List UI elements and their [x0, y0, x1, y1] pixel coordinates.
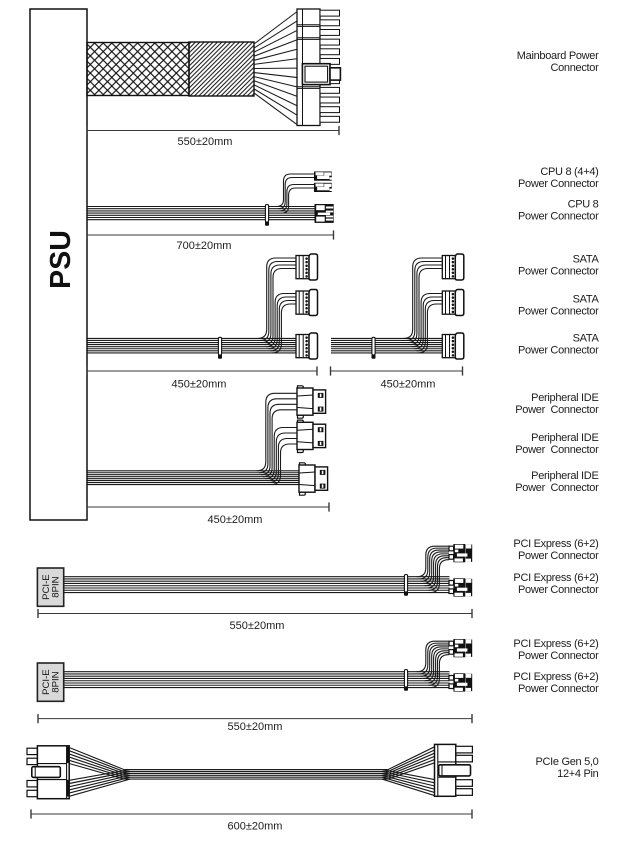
- svg-text:550±20mm: 550±20mm: [228, 721, 283, 733]
- svg-text:700±20mm: 700±20mm: [177, 240, 232, 252]
- svg-text:PCI Express (6+2)Power Connect: PCI Express (6+2)Power Connector: [513, 671, 599, 695]
- svg-text:550±20mm: 550±20mm: [230, 620, 285, 632]
- svg-text:PCI-E8PIN: PCI-E8PIN: [41, 574, 61, 600]
- svg-text:PCI-E8PIN: PCI-E8PIN: [41, 669, 61, 695]
- svg-text:PCI Express (6+2)Power Connect: PCI Express (6+2)Power Connector: [513, 638, 599, 662]
- svg-text:450±20mm: 450±20mm: [172, 379, 227, 391]
- svg-text:450±20mm: 450±20mm: [381, 379, 436, 391]
- svg-text:PCI Express (6+2)Power Connect: PCI Express (6+2)Power Connector: [513, 538, 599, 562]
- svg-text:550±20mm: 550±20mm: [178, 136, 233, 148]
- svg-text:PCI Express (6+2)Power Connect: PCI Express (6+2)Power Connector: [513, 572, 599, 596]
- svg-text:450±20mm: 450±20mm: [208, 514, 263, 526]
- svg-text:PSU: PSU: [45, 230, 77, 289]
- svg-text:600±20mm: 600±20mm: [228, 821, 283, 833]
